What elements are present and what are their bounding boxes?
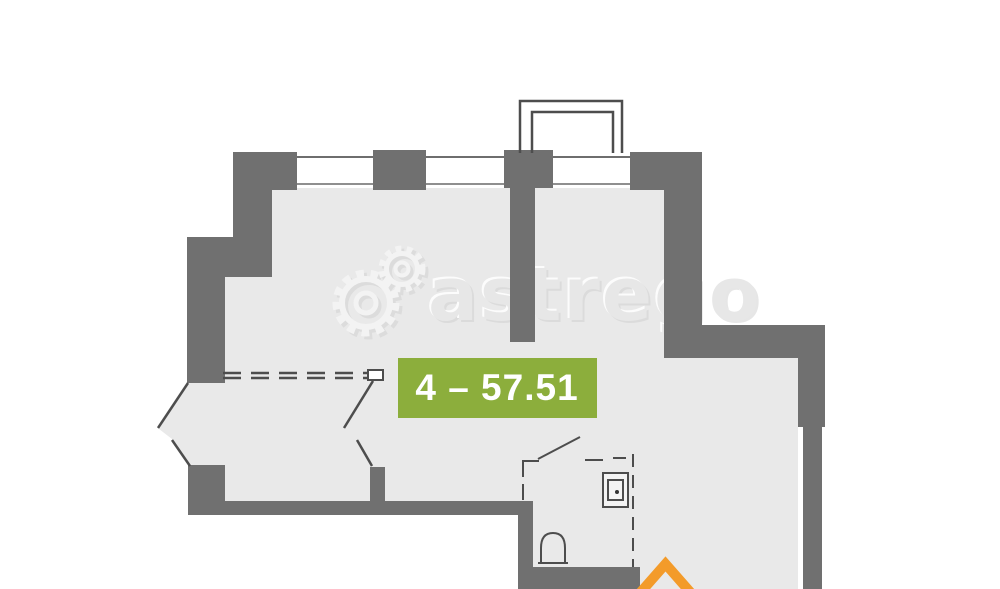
bay-door-cap (368, 370, 383, 380)
window-2 (426, 153, 504, 188)
windows (297, 153, 630, 188)
wall-top-right-block (630, 152, 702, 190)
wall-right-upper (664, 186, 702, 325)
wall-top-left-block (233, 152, 297, 190)
wall-partition-main (510, 188, 535, 342)
wall-right-outer-lower (803, 427, 822, 589)
wall-right-outer-upper (798, 358, 825, 427)
window-1 (297, 153, 373, 188)
window-pier-1 (373, 150, 426, 190)
wall-left-upper (233, 190, 272, 237)
svg-text:4 – 57.51: 4 – 57.51 (415, 367, 578, 408)
window-3 (553, 153, 630, 188)
window-pier-2 (504, 150, 553, 188)
wall-bottom-left-block (188, 465, 225, 515)
wall-bathroom-left (518, 503, 533, 567)
wall-bottom (188, 501, 533, 515)
wall-right-extension (664, 325, 825, 358)
wall-bathroom-bottom (518, 567, 640, 589)
wall-left-step (187, 237, 272, 277)
wall-left-lower (187, 277, 225, 383)
balcony-outline (520, 101, 622, 153)
area-badge[interactable]: 4 – 57.51 (398, 358, 597, 418)
vent-shaft-icon (603, 473, 628, 507)
wall-door-stub (370, 467, 385, 503)
floorplan-image[interactable]: astrego astrego astrego (0, 0, 1000, 589)
